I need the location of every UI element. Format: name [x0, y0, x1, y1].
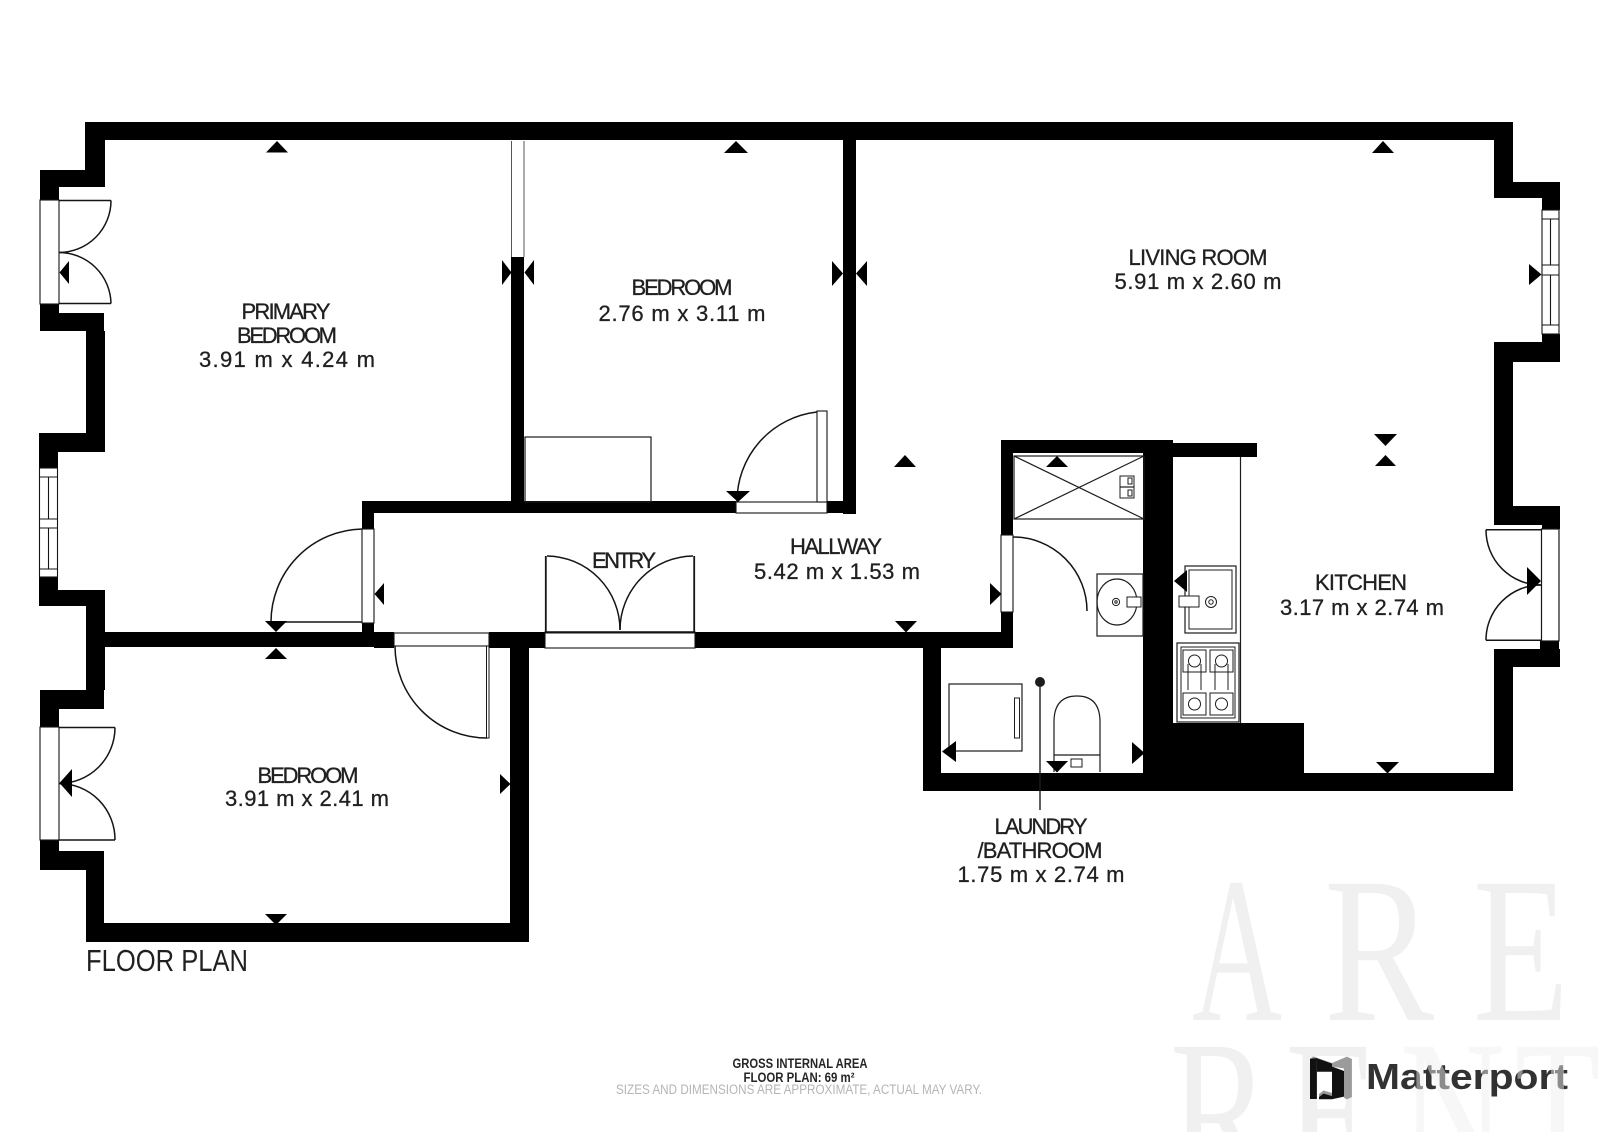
svg-text:/BATHROOM: /BATHROOM — [978, 838, 1103, 863]
svg-text:1.75 m x 2.74 m: 1.75 m x 2.74 m — [958, 862, 1125, 887]
svg-text:ENTRY: ENTRY — [592, 548, 656, 573]
svg-text:3.91 m x 2.41 m: 3.91 m x 2.41 m — [225, 786, 389, 811]
svg-text:2.76 m x 3.11 m: 2.76 m x 3.11 m — [599, 301, 766, 326]
svg-text:N: N — [1400, 998, 1505, 1132]
svg-text:SIZES AND DIMENSIONS ARE APPRO: SIZES AND DIMENSIONS ARE APPROXIMATE, AC… — [616, 1082, 982, 1097]
svg-text:5.91 m x 2.60 m: 5.91 m x 2.60 m — [1115, 269, 1282, 294]
svg-text:LIVING ROOM: LIVING ROOM — [1129, 245, 1268, 270]
svg-text:T: T — [1515, 998, 1600, 1132]
svg-text:BEDROOM: BEDROOM — [237, 323, 337, 348]
svg-text:FLOOR PLAN: FLOOR PLAN — [86, 943, 248, 978]
svg-text:PRIMARY: PRIMARY — [242, 299, 331, 324]
svg-text:KITCHEN: KITCHEN — [1315, 570, 1407, 595]
svg-text:HALLWAY: HALLWAY — [790, 534, 882, 559]
svg-text:BEDROOM: BEDROOM — [632, 275, 733, 300]
svg-text:R: R — [1170, 998, 1270, 1132]
svg-text:5.42 m x 1.53 m: 5.42 m x 1.53 m — [754, 559, 920, 584]
svg-text:3.17 m x 2.74 m: 3.17 m x 2.74 m — [1280, 595, 1444, 620]
svg-text:LAUNDRY: LAUNDRY — [995, 814, 1088, 839]
svg-text:BEDROOM: BEDROOM — [258, 763, 359, 788]
svg-text:3.91 m x 4.24 m: 3.91 m x 4.24 m — [199, 347, 375, 372]
svg-text:GROSS INTERNAL AREA: GROSS INTERNAL AREA — [733, 1056, 868, 1071]
